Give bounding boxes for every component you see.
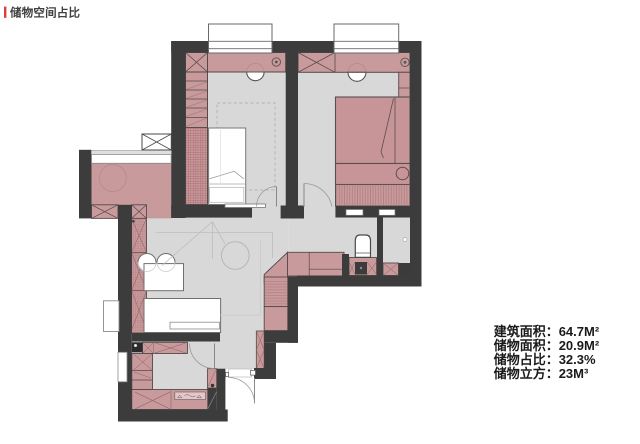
svg-text:储物占比：32.3%: 储物占比：32.3% (493, 352, 596, 367)
svg-text:储物立方：23M³: 储物立方：23M³ (493, 366, 589, 381)
svg-text:储物面积：20.9M²: 储物面积：20.9M² (493, 338, 600, 353)
svg-text:建筑面积：64.7M²: 建筑面积：64.7M² (494, 324, 600, 339)
svg-text:储物空间占比: 储物空间占比 (10, 5, 80, 19)
